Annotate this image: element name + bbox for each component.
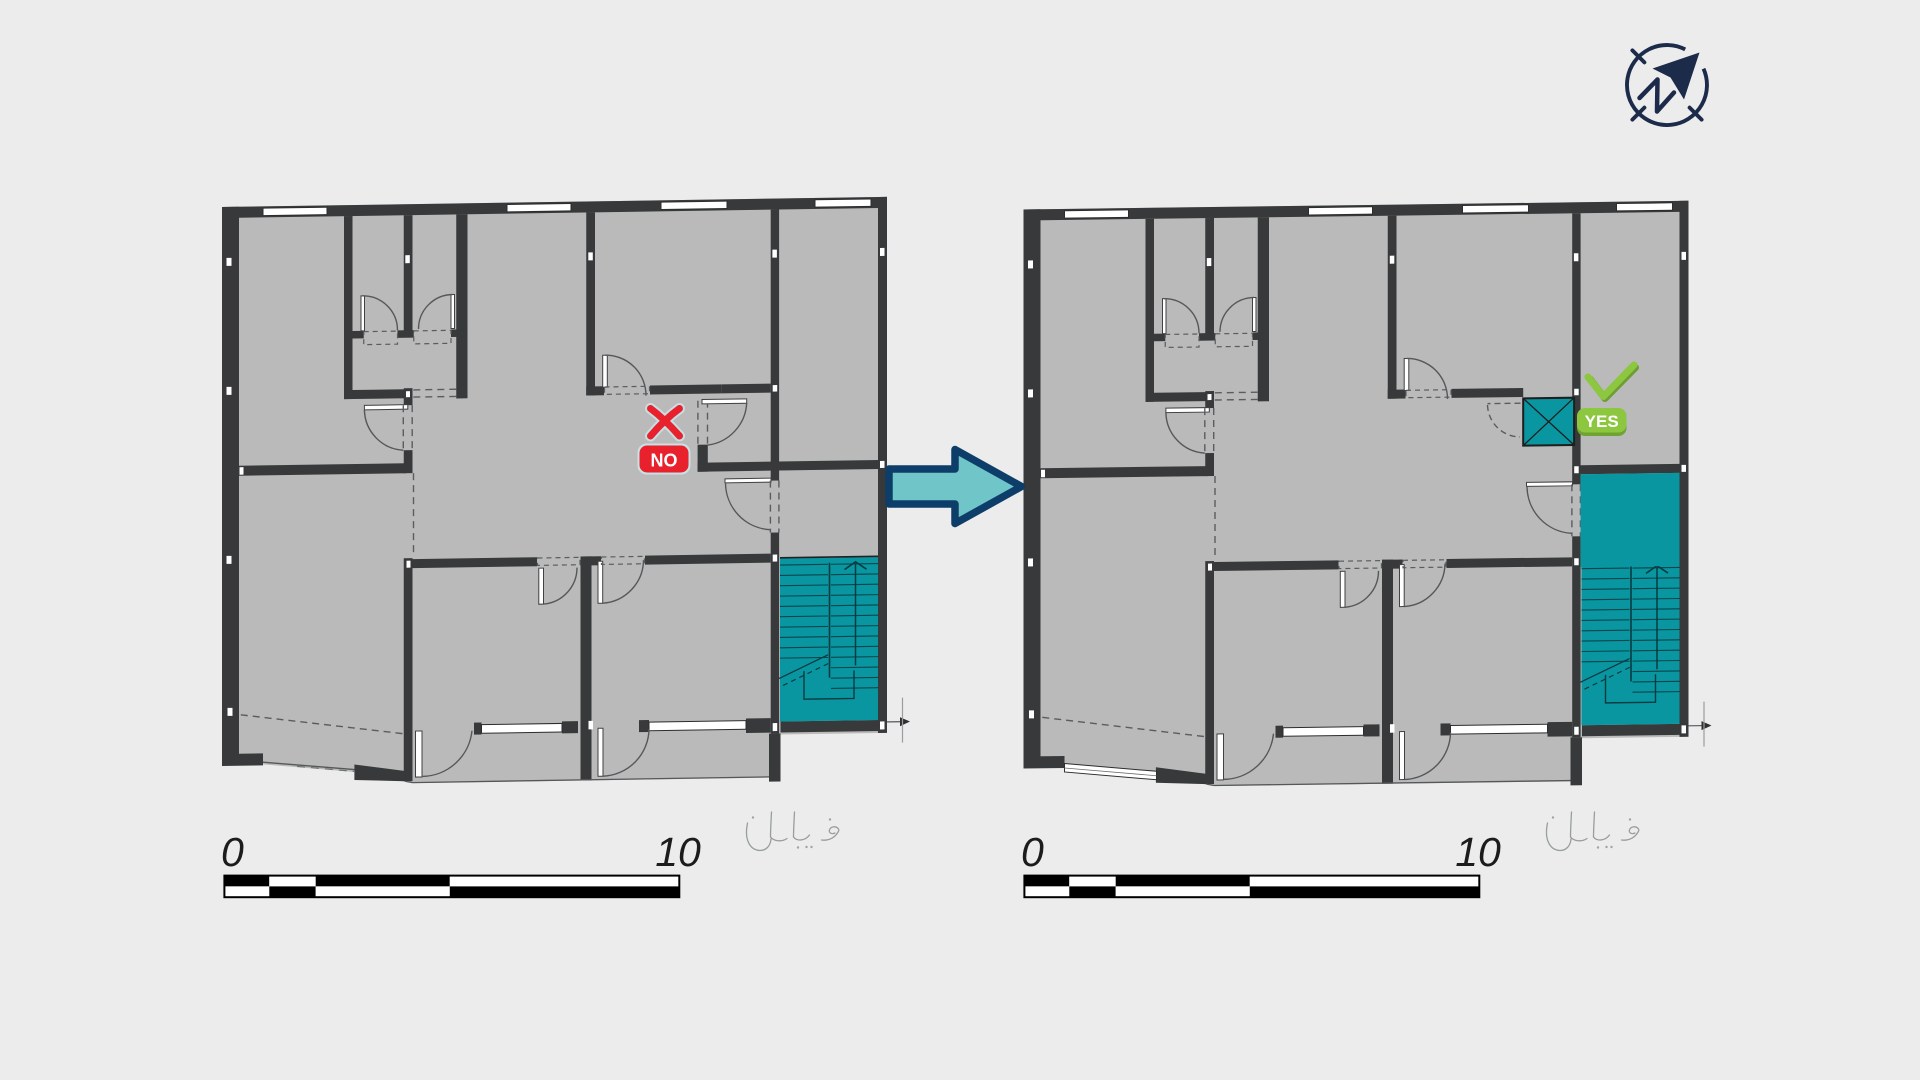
svg-text:10: 10 [655, 829, 701, 875]
svg-text:10: 10 [1455, 829, 1501, 875]
svg-text:0: 0 [221, 829, 244, 875]
svg-text:0: 0 [1021, 829, 1044, 875]
svg-text:YES: YES [1585, 412, 1619, 431]
svg-text:NO: NO [651, 451, 678, 471]
